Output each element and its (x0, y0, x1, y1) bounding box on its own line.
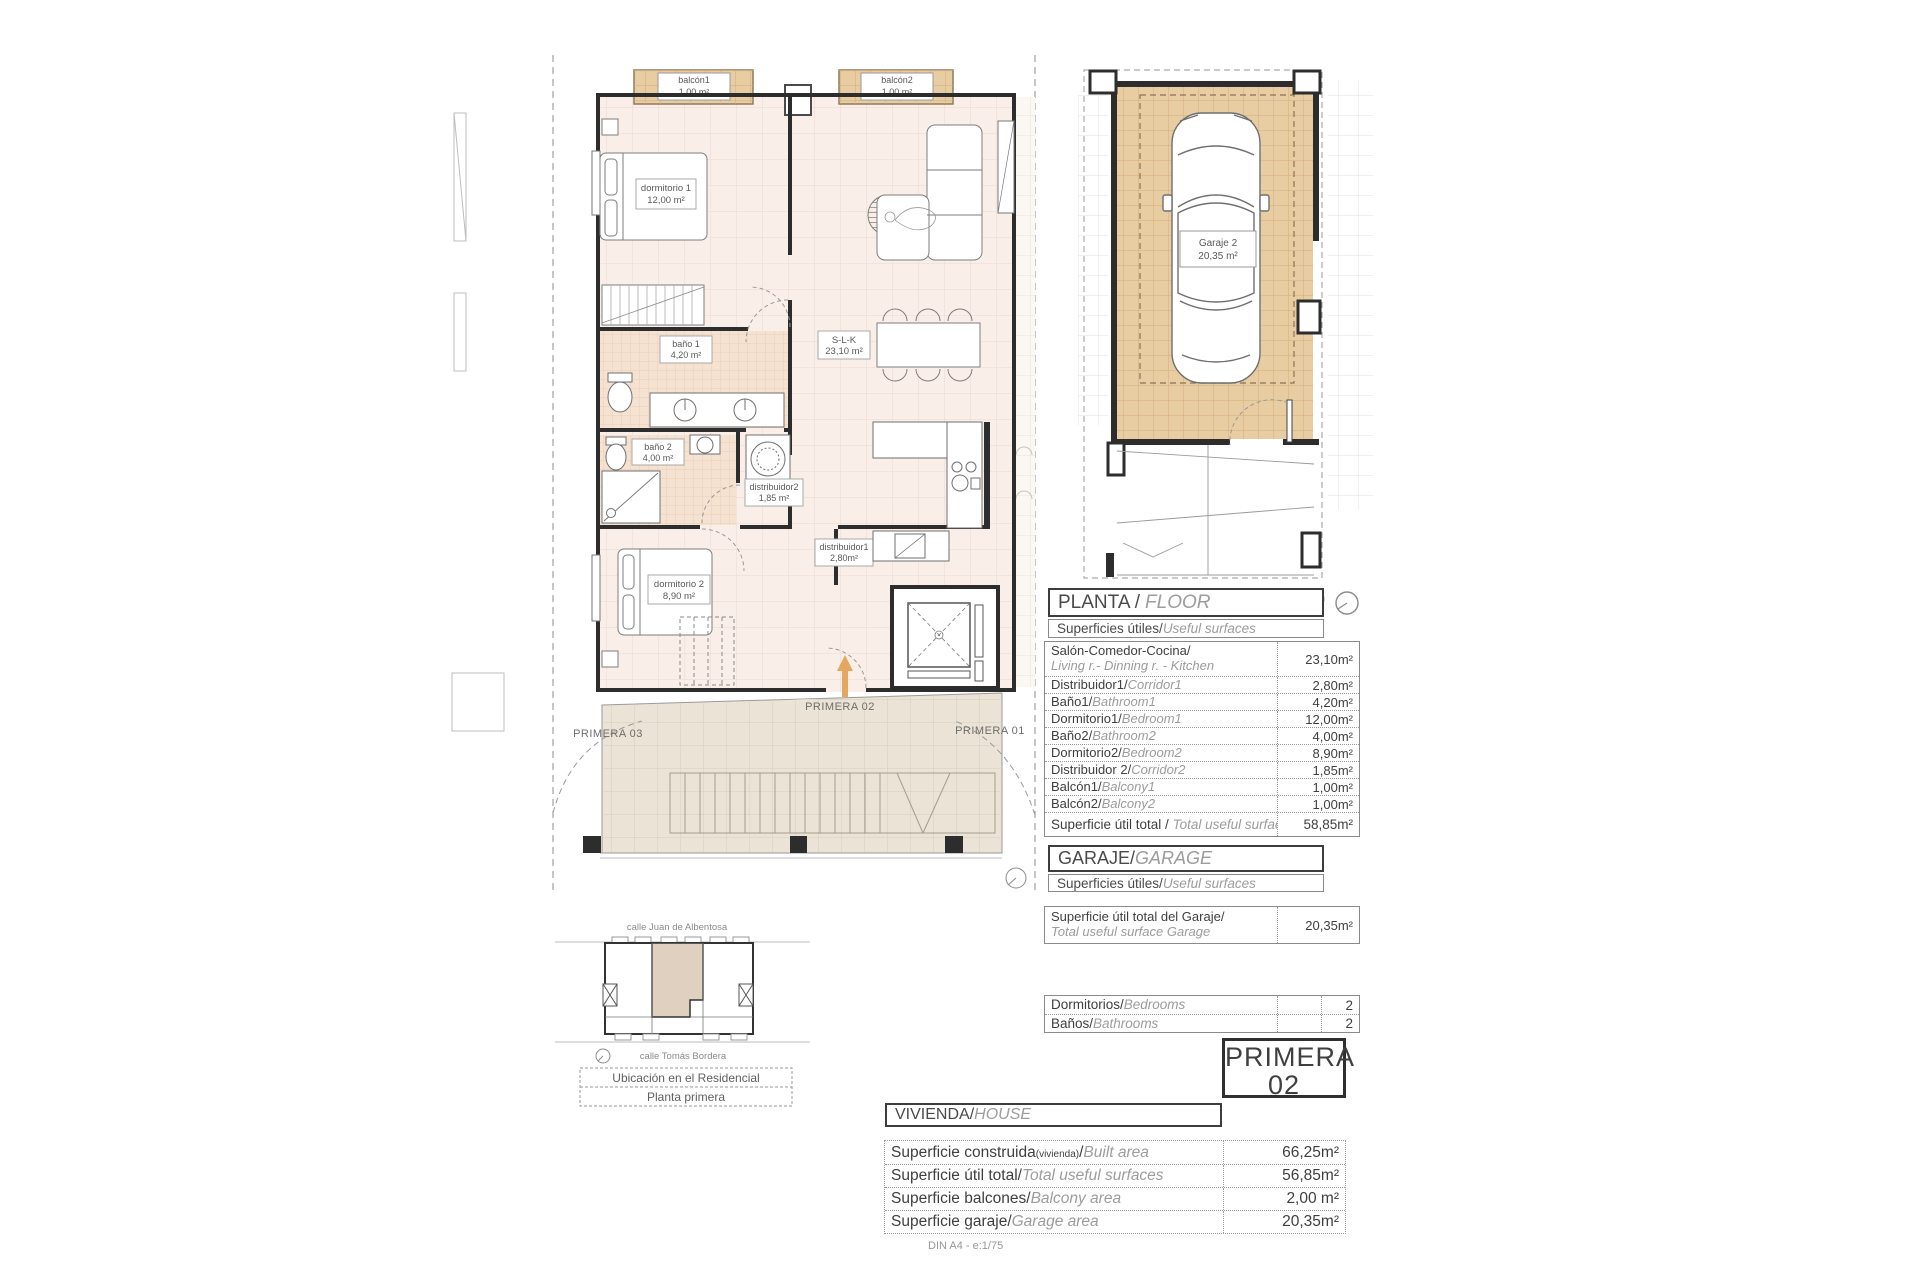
svg-text:12,00 m²: 12,00 m² (647, 195, 685, 206)
svg-text:Garaje 2: Garaje 2 (1199, 238, 1238, 249)
svg-text:S-L-K: S-L-K (832, 335, 857, 346)
planta-row: Salón-Comedor-Cocina/Living r.- Dinning … (1045, 642, 1359, 676)
vivienda-table: Superficie construida(vivienda)/Built ar… (884, 1140, 1346, 1234)
scale-note: DIN A4 - e:1/75 (928, 1240, 1003, 1252)
terrace (583, 693, 1002, 858)
balcony-2: balcón2 1,00 m² (839, 70, 953, 104)
svg-text:20,35 m²: 20,35 m² (1198, 251, 1238, 262)
planta-header: PLANTA / FLOOR (1048, 588, 1324, 617)
counts-table: Dormitorios/Bedrooms 2 Baños/Bathrooms 2 (1044, 995, 1360, 1033)
vivienda-row: Superficie útil total/Total useful surfa… (885, 1164, 1345, 1187)
svg-text:1,85 m²: 1,85 m² (759, 493, 790, 503)
floor-plan: balcón1 1,00 m² balcón2 1,00 m² (450, 55, 1040, 890)
planta-row: Baño1/Bathroom1 4,20m² (1045, 693, 1359, 710)
elevator-icon (892, 587, 998, 688)
planta-title-es: PLANTA / (1058, 592, 1140, 614)
balcony2-label-name: balcón2 (881, 75, 913, 85)
planta-total-row: Superficie útil total / Total useful sur… (1045, 812, 1359, 836)
minimap-caption: Ubicación en el Residencial Planta prime… (580, 1068, 792, 1106)
location-minimap: calle Juan de Albentosa calle Tomás Bord… (555, 918, 815, 1108)
street-top-label: calle Juan de Albentosa (627, 922, 728, 933)
unit-badge: PRIMERA 02 (1222, 1038, 1346, 1098)
balcony1-label-name: balcón1 (678, 75, 710, 85)
vivienda-header: VIVIENDA/HOUSE (885, 1103, 1222, 1127)
neighbour-left (452, 113, 504, 731)
svg-text:4,20 m²: 4,20 m² (671, 350, 702, 360)
planta-row: Balcón2/Balcony2 1,00m² (1045, 795, 1359, 812)
unit-label-left: PRIMERA 03 (573, 728, 643, 740)
planta-subheader: Superficies útiles/Useful surfaces (1048, 619, 1324, 638)
room-label-slk: S-L-K 23,10 m² (818, 331, 870, 359)
garaje-header: GARAJE/GARAGE (1048, 845, 1324, 872)
planta-row: Dormitorio2/Bedroom2 8,90m² (1045, 744, 1359, 761)
svg-text:2,80m²: 2,80m² (830, 553, 858, 563)
planta-row: Distribuidor 2/Corridor2 1,85m² (1045, 761, 1359, 778)
garaje-row: Superficie útil total del Garaje/Total u… (1045, 907, 1359, 943)
planta-title-en: FLOOR (1145, 592, 1210, 614)
svg-text:8,90 m²: 8,90 m² (663, 591, 695, 602)
planta-table: Salón-Comedor-Cocina/Living r.- Dinning … (1044, 641, 1360, 837)
svg-text:dormitorio 1: dormitorio 1 (641, 183, 691, 194)
garage-ramp (1117, 445, 1314, 575)
svg-text:Planta primera: Planta primera (647, 1090, 725, 1104)
vivienda-row: Superficie garaje/Garage area 20,35m² (885, 1210, 1345, 1233)
room-label-distribuidor2: distribuidor2 1,85 m² (745, 479, 803, 506)
street-bottom-label: calle Tomás Bordera (640, 1051, 727, 1062)
planta-row: Distribuidor1/Corridor1 2,80m² (1045, 676, 1359, 693)
room-label-dormitorio1: dormitorio 1 12,00 m² (636, 179, 696, 209)
balcony-1: balcón1 1,00 m² (634, 70, 753, 104)
minimap-building (603, 937, 753, 1040)
planta-row: Baño2/Bathroom2 4,00m² (1045, 727, 1359, 744)
svg-text:distribuidor2: distribuidor2 (749, 482, 798, 492)
room-label-bano1: baño 1 4,20 m² (660, 336, 712, 363)
wardrobe-icon (602, 285, 704, 325)
counts-row: Baños/Bathrooms 2 (1045, 1014, 1359, 1032)
unit-label-center: PRIMERA 02 (805, 701, 875, 713)
orientation-icon (1006, 868, 1026, 888)
svg-text:dormitorio 2: dormitorio 2 (654, 579, 704, 590)
room-label-bano2: baño 2 4,00 m² (632, 439, 684, 465)
garaje-table: Superficie útil total del Garaje/Total u… (1044, 906, 1360, 944)
svg-text:4,00 m²: 4,00 m² (643, 453, 674, 463)
garaje-subheader: Superficies útiles/Useful surfaces (1048, 874, 1324, 892)
room-label-garaje2: Garaje 2 20,35 m² (1180, 231, 1256, 267)
garage-plan: Garaje 2 20,35 m² (1078, 55, 1373, 620)
orientation-icon-panel (1334, 590, 1360, 616)
washer-icon (746, 435, 790, 483)
svg-text:baño 1: baño 1 (672, 339, 700, 349)
vivienda-row: Superficie balcones/Balcony area 2,00 m² (885, 1187, 1345, 1210)
orientation-icon-minimap (596, 1049, 610, 1063)
svg-text:distribuidor1: distribuidor1 (819, 542, 868, 552)
vivienda-row: Superficie construida(vivienda)/Built ar… (885, 1141, 1345, 1164)
neighbour-right (1016, 97, 1035, 687)
unit-label-right: PRIMERA 01 (955, 725, 1025, 737)
room-label-distribuidor1: distribuidor1 2,80m² (815, 539, 873, 566)
planta-row: Balcón1/Balcony1 1,00m² (1045, 778, 1359, 795)
counts-row: Dormitorios/Bedrooms 2 (1045, 996, 1359, 1014)
svg-text:23,10 m²: 23,10 m² (825, 346, 863, 357)
svg-text:Ubicación en el Residencial: Ubicación en el Residencial (612, 1071, 759, 1085)
room-label-dormitorio2: dormitorio 2 8,90 m² (648, 575, 710, 604)
planta-row: Dormitorio1/Bedroom1 12,00m² (1045, 710, 1359, 727)
svg-text:baño 2: baño 2 (644, 442, 672, 452)
